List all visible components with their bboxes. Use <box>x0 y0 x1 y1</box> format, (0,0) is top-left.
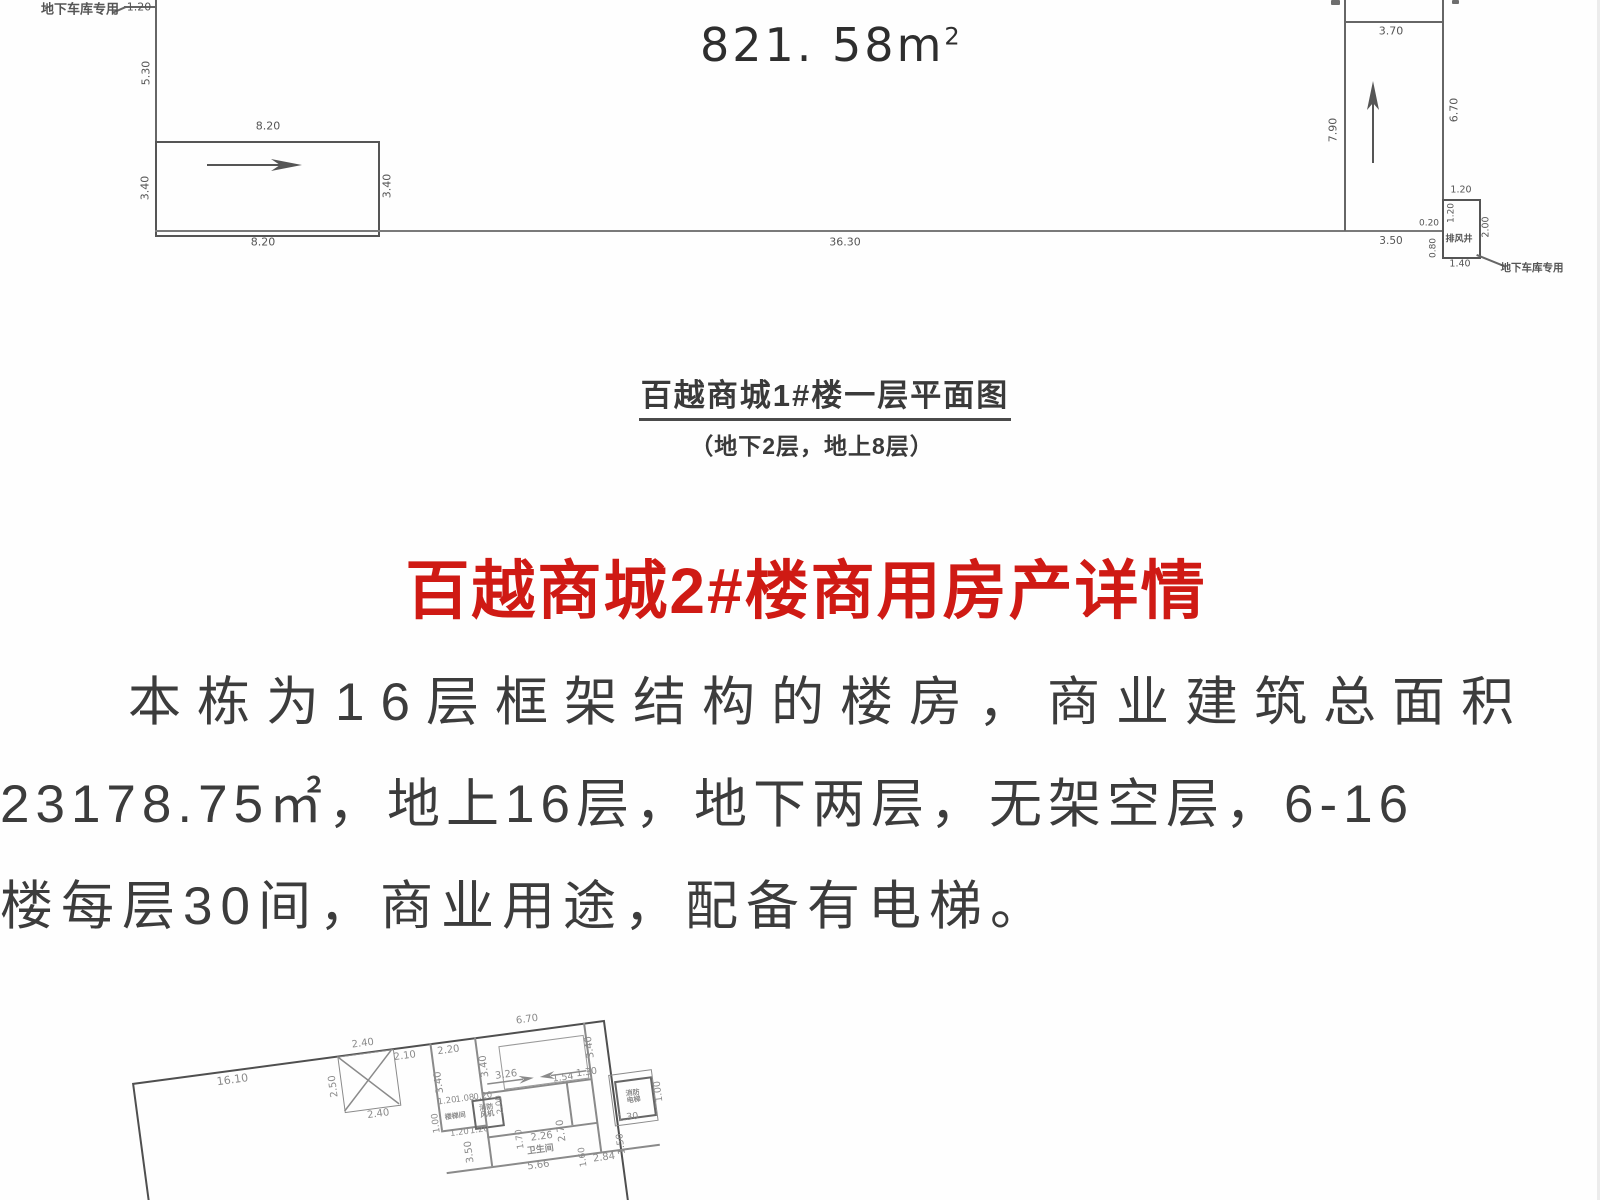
dimension-label: 5.30 <box>141 61 152 86</box>
dimension-label: 6.70 <box>1449 98 1460 123</box>
section-heading: 百越商城2#楼商用房产详情 <box>6 540 1600 632</box>
floor-plan-2: 16.102.402.402.502.106.702.203.403.403.4… <box>132 1009 731 1200</box>
dimension-label: 消防 风机 <box>479 1103 495 1119</box>
dimension-label: 排风井 <box>1445 236 1472 245</box>
cutoff-fragment <box>1452 0 1459 4</box>
dimension-label: 地下车库专用 <box>41 4 119 17</box>
plan1-caption: 百越商城1#楼一层平面图 （地下2层，地上8层） <box>0 370 1600 461</box>
dimension-label: 1.20 <box>127 2 152 13</box>
plan1-left-wall <box>155 0 157 143</box>
dimension-label: 1.40 <box>1449 259 1470 269</box>
dimension-label: 2.00 <box>1481 216 1491 237</box>
plan1-right-wall-b <box>1442 0 1444 200</box>
dimension-label: 地下车库专用 <box>1501 263 1564 274</box>
plan1-right-wall-a <box>1344 0 1346 231</box>
plan1-caption-subtitle: （地下2层，地上8层） <box>12 427 1600 461</box>
dimension-label: 1.20 <box>1450 185 1471 195</box>
dimension-label: 8.20 <box>256 121 281 132</box>
paragraph-line: 楼每层30间，商业用途，配备有电梯。 <box>0 856 1600 958</box>
arrow-right-icon <box>205 156 305 174</box>
dimension-label: 0.20 <box>473 1091 493 1102</box>
dimension-label: 0.20 <box>1419 220 1439 229</box>
dimension-label: 1.00 <box>653 1080 665 1102</box>
dimension-label: 0.80 <box>1430 238 1439 258</box>
arrow-up-icon <box>1364 80 1382 165</box>
plan1-area-label: 821. 58m2 <box>700 18 963 72</box>
paragraph-line: 23178.75㎡，地上16层，地下两层，无架空层，6-16 <box>0 754 1600 856</box>
dimension-label: 1.20 <box>437 1096 457 1107</box>
dimension-label: 2.40 <box>351 1038 374 1051</box>
dimension-label: 36.30 <box>829 237 861 248</box>
paragraph-line: 本栋为16层框架结构的楼房，商业建筑总面积 <box>0 652 1600 754</box>
dimension-label: 1.20 <box>450 1128 470 1139</box>
article-page: 821. 58m2 地下车库专用1.205.308.208.203.403.40… <box>0 0 1600 1200</box>
dimension-label: 3.40 <box>140 176 151 201</box>
dimension-label: 3.40 <box>382 174 393 199</box>
article-paragraph: 本栋为16层框架结构的楼房，商业建筑总面积 23178.75㎡，地上16层，地下… <box>0 652 1600 958</box>
dimension-label: 消防 电梯 <box>625 1089 641 1105</box>
plan1-caption-title: 百越商城1#楼一层平面图 <box>639 370 1011 421</box>
dimension-label: 6.70 <box>515 1014 538 1027</box>
dimension-label: 3.70 <box>1379 26 1404 37</box>
dimension-label: 2.00 <box>495 1095 506 1115</box>
dimension-label: 1.20 <box>1448 203 1457 223</box>
dimension-label: 3.50 <box>1379 236 1402 247</box>
plan1-base-line <box>155 230 1444 232</box>
dimension-label: 1.50 <box>615 1133 627 1155</box>
cutoff-fragment <box>1331 0 1340 5</box>
dimension-label: 1.08 <box>455 1094 475 1105</box>
dimension-label: 1.20 <box>469 1125 489 1136</box>
dimension-label: 7.90 <box>1328 118 1339 143</box>
cross-lines <box>337 1049 399 1111</box>
dimension-label: 8.20 <box>251 237 276 248</box>
plan1-right-top-line <box>1344 21 1444 23</box>
